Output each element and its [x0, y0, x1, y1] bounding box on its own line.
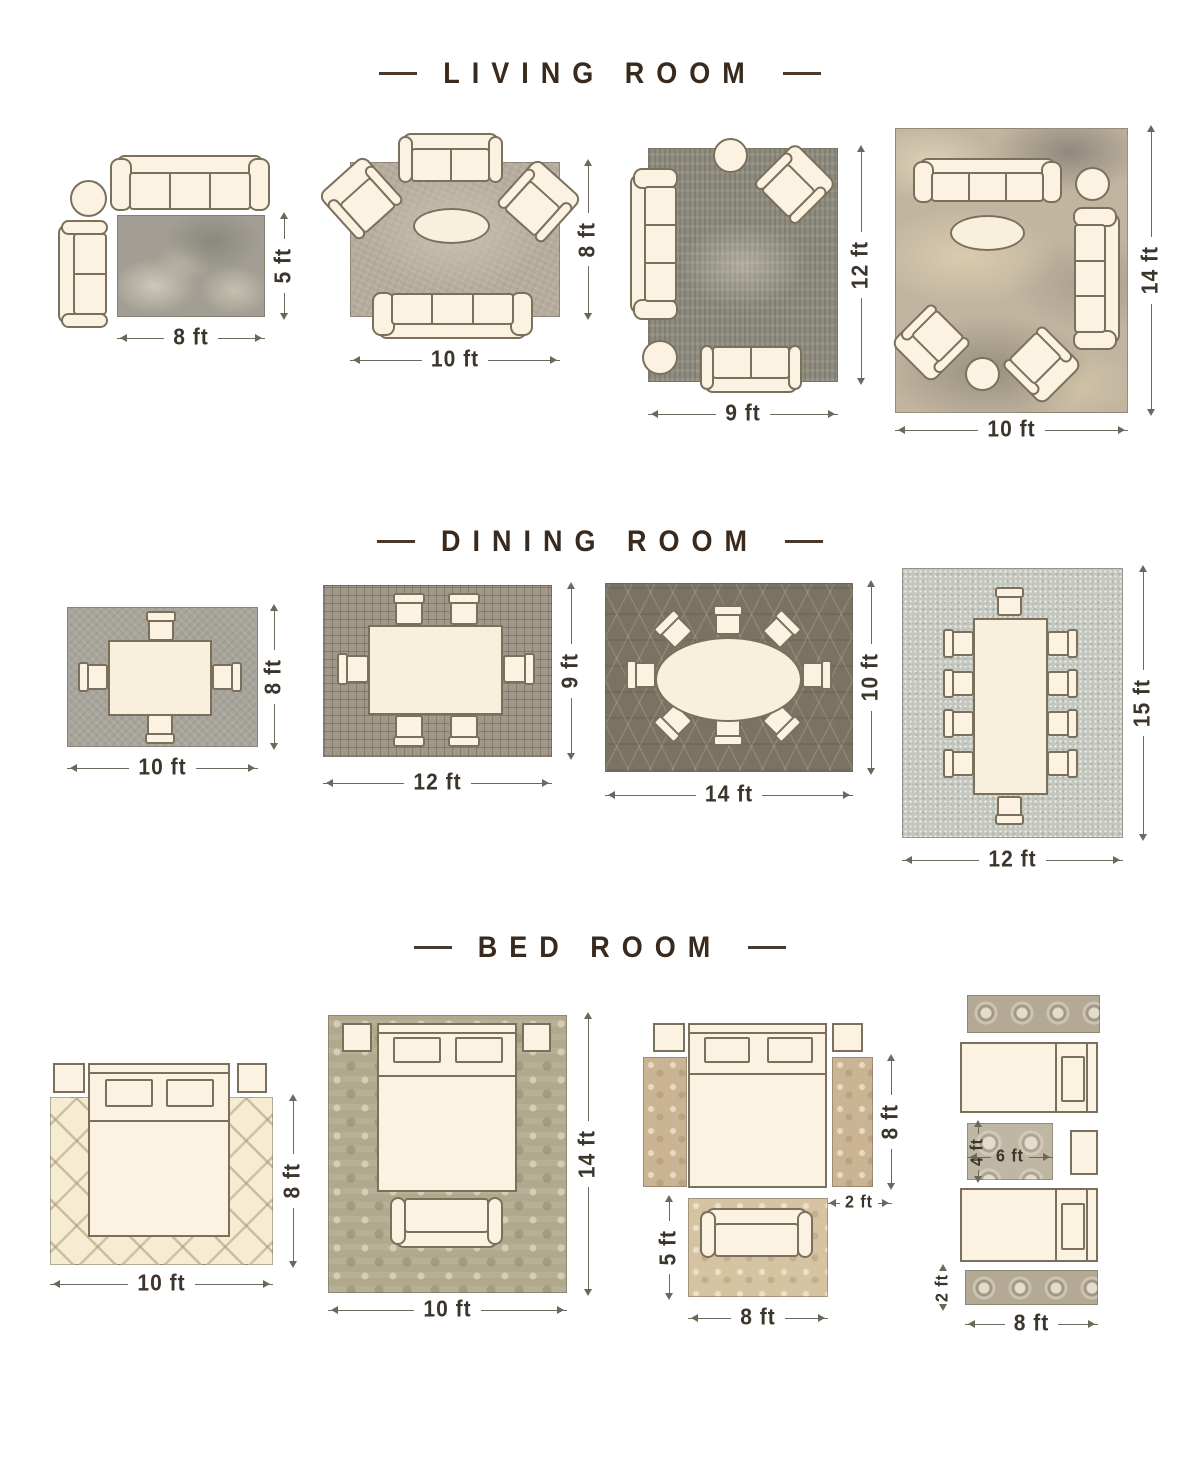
- dimension-label: 10 ft: [858, 644, 884, 710]
- section-title-text: LIVING ROOM: [443, 56, 757, 90]
- dimension-width: 10 ft: [67, 756, 258, 780]
- dimension-width: 9 ft: [648, 402, 838, 426]
- dimension-height: 8 ft: [262, 607, 286, 747]
- dining-room-layout-4: 12 ft 15 ft: [890, 560, 1180, 895]
- dimension-height: 8 ft: [281, 1097, 305, 1265]
- dining-table: [108, 640, 212, 716]
- long-dining-table: [973, 618, 1048, 795]
- dimension-height: 9 ft: [559, 585, 583, 757]
- dimension-label: 2 ft: [933, 1270, 952, 1306]
- dimension-label: 9 ft: [716, 401, 770, 427]
- dining-chair: [341, 655, 369, 683]
- dimension-width: 10 ft: [350, 348, 560, 372]
- dining-chair: [997, 796, 1022, 821]
- dimension-label: 8 ft: [575, 213, 601, 267]
- runner-rug: [965, 1270, 1098, 1305]
- dining-chair: [947, 751, 974, 776]
- nightstand: [653, 1023, 685, 1052]
- nightstand: [1070, 1130, 1098, 1175]
- dimension-label: 14 ft: [1138, 237, 1164, 303]
- dimension-height: 5 ft: [272, 215, 296, 317]
- dining-chair: [450, 715, 478, 743]
- dining-chair: [630, 662, 656, 688]
- round-side-table: [713, 138, 748, 173]
- dimension-height: 12 ft: [849, 148, 873, 382]
- dimension-runner-width: 2 ft: [826, 1194, 892, 1212]
- dimension-height: 8 ft: [576, 162, 600, 317]
- rug-size-guide: { "colors": { "background": "#ffffff", "…: [0, 0, 1200, 1467]
- dimension-label: 8 ft: [731, 1305, 785, 1331]
- living-room-layout-4: 10 ft 14 ft: [880, 110, 1190, 455]
- headboard: [690, 1025, 825, 1034]
- dimension-label: 6 ft: [991, 1147, 1029, 1166]
- round-side-table: [70, 180, 107, 217]
- dining-chair: [1047, 631, 1074, 656]
- pillow: [455, 1037, 503, 1063]
- nightstand: [832, 1023, 863, 1052]
- round-ottoman: [642, 340, 678, 375]
- blanket-edge: [378, 1075, 516, 1077]
- dining-chair: [148, 615, 174, 641]
- title-dash: [377, 540, 415, 543]
- runner-rug: [832, 1057, 873, 1187]
- dimension-runner-height: 8 ft: [879, 1057, 903, 1187]
- section-title-bed-room: BED ROOM: [0, 932, 1200, 963]
- oval-coffee-table: [413, 208, 490, 244]
- dining-chair: [450, 597, 478, 625]
- title-dash: [748, 946, 786, 949]
- section-title-text: DINING ROOM: [441, 524, 759, 558]
- nightstand: [342, 1023, 372, 1052]
- title-dash: [785, 540, 823, 543]
- dining-chair: [947, 671, 974, 696]
- twin-bed: [960, 1188, 1098, 1262]
- loveseat: [700, 345, 802, 393]
- sofa-3-seat: [372, 292, 533, 339]
- section-title-living-room: LIVING ROOM: [0, 58, 1200, 89]
- dimension-label: 10 ft: [978, 417, 1044, 443]
- living-room-layout-2: 10 ft 8 ft: [330, 120, 620, 385]
- pillow: [1061, 1056, 1085, 1102]
- dining-chair: [212, 664, 238, 690]
- dimension-width: 14 ft: [605, 783, 853, 807]
- sofa-3-seat: [630, 168, 678, 320]
- blanket-edge: [1055, 1043, 1057, 1112]
- bed-room-layout-4: 4 ft 6 ft 2 ft 8 ft: [910, 980, 1200, 1345]
- blanket-edge: [689, 1073, 826, 1075]
- queen-bed: [688, 1023, 827, 1188]
- dimension-accent-width: 8 ft: [688, 1306, 828, 1330]
- bench: [700, 1208, 813, 1258]
- dimension-width: 12 ft: [323, 771, 552, 795]
- dining-chair: [147, 714, 173, 740]
- dimension-width: 8 ft: [117, 326, 265, 350]
- dimension-label: 9 ft: [558, 644, 584, 698]
- dimension-label: 10 ft: [129, 755, 195, 781]
- dimension-accent-height: 5 ft: [657, 1198, 681, 1297]
- area-rug-8x5: [117, 215, 265, 317]
- dining-room-layout-3: 14 ft 10 ft: [590, 565, 900, 810]
- dimension-width: 10 ft: [50, 1272, 273, 1296]
- round-ottoman: [965, 357, 1000, 391]
- dimension-label: 14 ft: [575, 1121, 601, 1187]
- dimension-height: 10 ft: [859, 583, 883, 772]
- title-dash: [414, 946, 452, 949]
- sofa-3-seat: [1073, 207, 1120, 350]
- queen-bed: [377, 1023, 517, 1192]
- headboard: [1086, 1043, 1088, 1112]
- round-side-table: [1075, 167, 1110, 201]
- oval-dining-table: [655, 637, 802, 722]
- section-title-dining-room: DINING ROOM: [0, 526, 1200, 557]
- pillow: [704, 1037, 750, 1063]
- dining-chair: [1047, 751, 1074, 776]
- dimension-label: 10 ft: [128, 1271, 194, 1297]
- bed-room-layout-3: 8 ft 2 ft 5 ft 8 ft: [630, 1010, 910, 1325]
- blanket-edge: [89, 1120, 229, 1122]
- loveseat: [398, 133, 503, 183]
- bench: [390, 1197, 503, 1248]
- headboard: [1086, 1189, 1088, 1261]
- dimension-width: 10 ft: [328, 1298, 567, 1322]
- dining-chair: [947, 631, 974, 656]
- dimension-height: 14 ft: [1139, 128, 1163, 413]
- nightstand: [53, 1063, 85, 1093]
- pillow: [1061, 1203, 1085, 1250]
- dining-chair: [947, 711, 974, 736]
- dimension-width: 12 ft: [902, 848, 1123, 872]
- dimension-label: 15 ft: [1130, 670, 1156, 736]
- oval-coffee-table: [950, 215, 1025, 251]
- living-room-layout-1: 8 ft 5 ft: [50, 130, 320, 365]
- queen-bed: [88, 1063, 230, 1237]
- dimension-runner-height: 2 ft: [934, 1267, 952, 1308]
- dimension-label: 2 ft: [840, 1193, 878, 1212]
- sofa-3-seat: [110, 155, 270, 211]
- title-dash: [783, 72, 821, 75]
- dining-chair: [1047, 671, 1074, 696]
- dining-chair: [997, 591, 1022, 616]
- runner-rug: [967, 995, 1100, 1033]
- dimension-label: 12 ft: [848, 232, 874, 298]
- dining-chair: [1047, 711, 1074, 736]
- dining-chair: [395, 715, 423, 743]
- dimension-label: 5 ft: [271, 239, 297, 293]
- living-room-layout-3: 9 ft 12 ft: [620, 130, 890, 430]
- pillow: [393, 1037, 441, 1063]
- dimension-height: 14 ft: [576, 1015, 600, 1293]
- dining-chair: [82, 664, 108, 690]
- blanket-edge: [1055, 1189, 1057, 1261]
- nightstand: [237, 1063, 267, 1093]
- dining-chair: [503, 655, 531, 683]
- headboard: [379, 1025, 515, 1034]
- sofa-3-seat: [913, 158, 1062, 203]
- dining-room-layout-2: 12 ft 9 ft: [310, 565, 610, 810]
- loveseat: [58, 220, 108, 328]
- dimension-between-width: 6 ft: [967, 1148, 1053, 1166]
- runner-rug: [643, 1057, 687, 1187]
- dimension-width: 10 ft: [895, 418, 1128, 442]
- dining-table: [368, 625, 503, 715]
- bed-room-layout-1: 10 ft 8 ft: [30, 1030, 330, 1315]
- dining-chair: [802, 662, 828, 688]
- dimension-label: 12 ft: [404, 770, 470, 796]
- title-dash: [379, 72, 417, 75]
- pillow: [767, 1037, 813, 1063]
- dimension-label: 8 ft: [164, 325, 218, 351]
- dimension-label: 5 ft: [656, 1221, 682, 1275]
- dimension-label: 8 ft: [1005, 1311, 1059, 1337]
- pillow: [105, 1079, 153, 1107]
- dimension-label: 14 ft: [696, 782, 762, 808]
- dimension-label: 8 ft: [878, 1095, 904, 1149]
- bed-room-layout-2: 10 ft 14 ft: [310, 990, 620, 1345]
- dimension-label: 8 ft: [280, 1154, 306, 1208]
- dimension-height: 15 ft: [1131, 568, 1155, 838]
- dimension-runner-width: 8 ft: [965, 1312, 1098, 1336]
- dimension-label: 8 ft: [261, 650, 287, 704]
- pillow: [166, 1079, 214, 1107]
- dining-room-layout-1: 10 ft 8 ft: [40, 580, 330, 805]
- twin-bed: [960, 1042, 1098, 1113]
- dining-chair: [395, 597, 423, 625]
- dimension-label: 12 ft: [979, 847, 1045, 873]
- section-title-text: BED ROOM: [478, 930, 723, 964]
- dimension-label: 10 ft: [414, 1297, 480, 1323]
- nightstand: [522, 1023, 551, 1052]
- dining-chair: [715, 609, 741, 635]
- dimension-label: 10 ft: [422, 347, 488, 373]
- headboard: [90, 1065, 228, 1074]
